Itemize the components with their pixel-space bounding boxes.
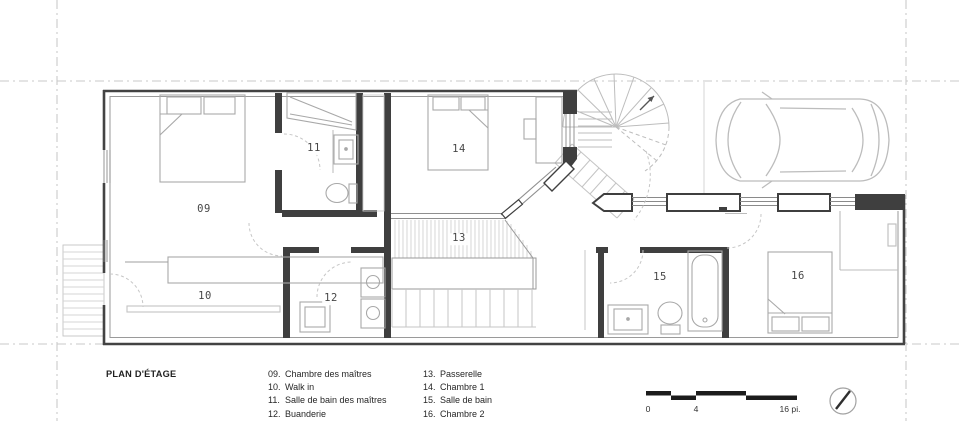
legend-item: 15.Salle de bain bbox=[423, 394, 492, 407]
legend-item: 11.Salle de bain des maîtres bbox=[268, 394, 387, 407]
legend-item-number: 15. bbox=[423, 395, 440, 405]
scale-label-16: 16 pi. bbox=[779, 404, 800, 414]
vanity-sink-bath bbox=[608, 305, 648, 334]
room-label-16: 16 bbox=[789, 271, 807, 283]
legend-column-1: 09.Chambre des maîtres10.Walk in11.Salle… bbox=[268, 367, 387, 420]
legend-item: 16.Chambre 2 bbox=[423, 407, 492, 420]
bed-master bbox=[160, 95, 245, 182]
bed-chambre1 bbox=[428, 95, 488, 170]
room-label-11: 11 bbox=[305, 143, 323, 155]
scale-bar: 0 4 16 pi. bbox=[646, 391, 801, 414]
legend-item-number: 14. bbox=[423, 382, 440, 392]
passerelle-bridge bbox=[391, 167, 560, 327]
page-title: PLAN D'ÉTAGE bbox=[106, 369, 176, 379]
legend-item-number: 13. bbox=[423, 369, 440, 379]
legend-item-label: Chambre 2 bbox=[440, 409, 485, 419]
room-label-09: 09 bbox=[195, 204, 213, 216]
legend-item: 10.Walk in bbox=[268, 380, 387, 393]
balcony bbox=[63, 245, 104, 336]
room-label-14: 14 bbox=[450, 144, 468, 156]
legend-item-label: Passerelle bbox=[440, 369, 482, 379]
desk bbox=[524, 97, 562, 163]
car-top-view bbox=[716, 92, 889, 188]
toilet-master bbox=[326, 184, 357, 204]
legend-item-label: Buanderie bbox=[285, 409, 326, 419]
legend-item-number: 16. bbox=[423, 409, 440, 419]
vanity-sink-master bbox=[333, 130, 358, 173]
legend-item-label: Walk in bbox=[285, 382, 314, 392]
legend-item-number: 09. bbox=[268, 369, 285, 379]
interior-walls bbox=[275, 93, 729, 338]
legend-column-2: 13.Passerelle14.Chambre 115.Salle de bai… bbox=[423, 367, 492, 420]
scale-label-4: 4 bbox=[694, 404, 699, 414]
legend-item-label: Chambre 1 bbox=[440, 382, 485, 392]
legend-item-label: Salle de bain des maîtres bbox=[285, 395, 387, 405]
legend-item: 13.Passerelle bbox=[423, 367, 492, 380]
closet-chambre2 bbox=[840, 211, 898, 270]
north-arrow-icon bbox=[830, 388, 856, 414]
room-label-10: 10 bbox=[196, 291, 214, 303]
legend-item: 09.Chambre des maîtres bbox=[268, 367, 387, 380]
room-label-13: 13 bbox=[450, 233, 468, 245]
legend-item-label: Salle de bain bbox=[440, 395, 492, 405]
floor-plan-drawing: 0 4 16 pi. bbox=[0, 0, 960, 421]
floor-plan-sheet: 0 4 16 pi. 0910111213141516 PLAN D'ÉTAGE… bbox=[0, 0, 960, 421]
shower bbox=[287, 93, 356, 130]
bed-chambre2 bbox=[768, 252, 832, 333]
wardrobe-counter bbox=[168, 257, 383, 283]
legend-item: 12.Buanderie bbox=[268, 407, 387, 420]
laundry-sink bbox=[300, 302, 330, 332]
room-label-12: 12 bbox=[322, 293, 340, 305]
legend-item-number: 12. bbox=[268, 409, 285, 419]
scale-label-0: 0 bbox=[646, 404, 651, 414]
bathtub bbox=[688, 251, 722, 331]
legend-item-number: 11. bbox=[268, 395, 285, 405]
closet-rod bbox=[127, 306, 280, 312]
toilet-bath bbox=[658, 302, 682, 334]
bridge-gate bbox=[502, 200, 523, 219]
legend-item-number: 10. bbox=[268, 382, 285, 392]
plumbing-chase bbox=[363, 95, 384, 211]
legend-item-label: Chambre des maîtres bbox=[285, 369, 372, 379]
legend-item: 14.Chambre 1 bbox=[423, 380, 492, 393]
room-label-15: 15 bbox=[651, 272, 669, 284]
washer-dryer bbox=[361, 268, 385, 328]
